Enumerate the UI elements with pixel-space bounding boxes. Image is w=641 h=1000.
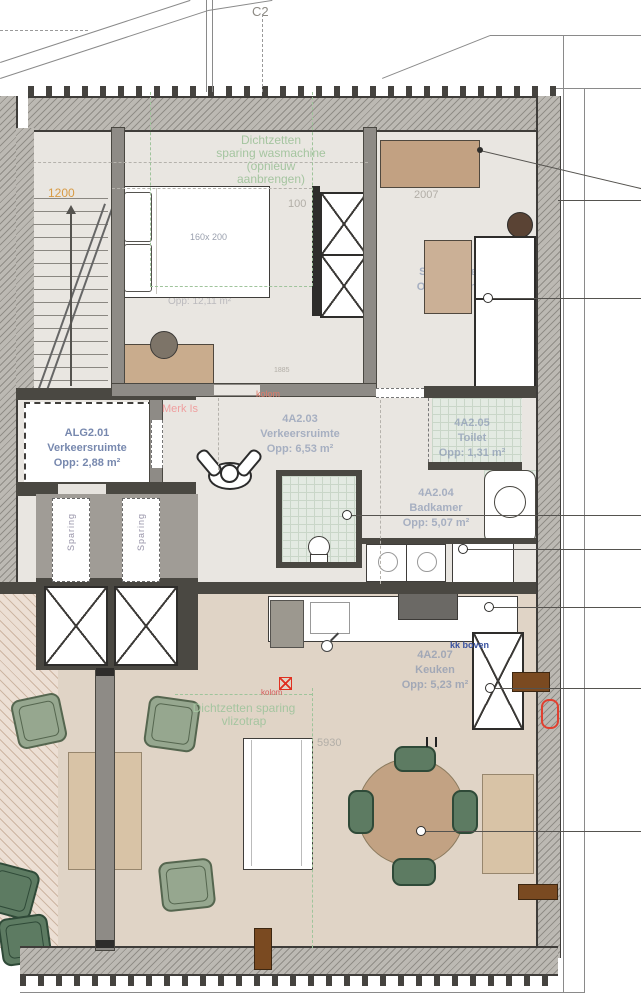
dim-100: 100 <box>288 198 306 210</box>
note-line: aanbrengen) <box>196 173 346 186</box>
dining-chair <box>394 746 436 772</box>
room-label-4a2-04: 4A2.04 Badkamer Opp: 5,07 m² <box>376 486 496 531</box>
centerline <box>0 30 88 31</box>
note-merk: Merk Is <box>162 403 198 415</box>
door-opening <box>214 385 260 395</box>
basin <box>417 552 437 572</box>
roof-line <box>382 35 490 79</box>
beam <box>254 928 272 970</box>
wall-cap <box>96 940 114 948</box>
wardrobe <box>320 192 368 318</box>
leader-line <box>558 200 641 201</box>
room-name: Verkeersruimte <box>240 427 360 442</box>
leader-node <box>458 544 468 554</box>
room-name: Verkeersruimte <box>28 441 146 456</box>
bath-wall <box>276 470 282 568</box>
wall-cap <box>96 668 114 676</box>
wall-spine <box>96 668 114 950</box>
counter-block <box>270 600 304 648</box>
basin <box>378 552 398 572</box>
room-label-alg2-01: ALG2.01 Verkeersruimte Opp: 2,88 m² <box>28 426 146 471</box>
sideboard-top <box>380 140 480 188</box>
leader-node <box>342 510 352 520</box>
shower-drain <box>494 486 526 518</box>
dim-stair: 1200 <box>48 186 75 200</box>
room-area: Opp: 2,88 m² <box>28 456 146 471</box>
room-name: Keuken <box>378 663 492 678</box>
wall-interior <box>196 582 536 594</box>
roof-line <box>0 10 208 79</box>
leader-node <box>416 826 426 836</box>
wall-top <box>28 96 558 132</box>
wardrobe-cell <box>322 194 366 256</box>
beam <box>512 672 550 692</box>
wall-interior <box>112 128 124 390</box>
wall-bottom <box>20 946 558 976</box>
note-kolom-top: kolom <box>256 389 280 399</box>
dining-chair <box>348 790 374 834</box>
person-head <box>220 464 239 483</box>
roof-line <box>0 0 190 63</box>
leader-node <box>483 293 493 303</box>
note-vlizotrap: Dichtzetten sparing vlizotrap <box>164 702 324 728</box>
wall-stair-left <box>16 128 34 390</box>
room-id: 4A2.03 <box>240 412 360 427</box>
long-table-line <box>251 740 252 866</box>
tick-mark <box>426 737 428 747</box>
leader-line <box>492 298 641 299</box>
boundary-line <box>584 88 585 992</box>
red-capsule-marker <box>541 699 559 729</box>
room-id: 4A2.07 <box>378 648 492 663</box>
room-name: Toilet <box>424 431 520 446</box>
wall-interior <box>424 386 536 398</box>
door-opening <box>376 388 424 398</box>
room-label-4a2-03: 4A2.03 Verkeersruimte Opp: 6,53 m² <box>240 412 360 457</box>
side-table <box>482 774 534 874</box>
roof-line <box>490 35 641 36</box>
room-name: Badkamer <box>376 501 496 516</box>
pillow <box>124 192 152 242</box>
door-opening <box>58 484 106 494</box>
leader-line <box>352 515 641 516</box>
floor-plan: Opp: 12,11 m² 4A2.02 Slaapkamer Opp: 8,4… <box>0 0 641 1000</box>
room-id: ALG2.01 <box>28 426 146 441</box>
kitchen-sink <box>310 602 350 634</box>
revision-line-green <box>150 286 312 287</box>
armchair <box>158 857 217 912</box>
bed-split-line <box>156 188 157 294</box>
leader-node <box>485 683 495 693</box>
shaft-label: Sparing <box>66 513 76 551</box>
leader-line <box>426 831 641 832</box>
dashed-line <box>218 398 219 470</box>
boundary-line <box>556 88 641 89</box>
bath-wall <box>276 562 362 568</box>
revision-line-green <box>175 694 312 695</box>
elevator-shaft <box>114 586 178 666</box>
leader-node <box>484 602 494 612</box>
leader-line <box>493 607 641 608</box>
tick-mark <box>435 737 437 747</box>
bench <box>424 240 472 314</box>
cooktop <box>398 592 458 620</box>
outer-line-bottom <box>20 992 585 993</box>
seat-line <box>165 865 209 905</box>
bath-wall <box>356 470 362 568</box>
bed-size-label: 160x 200 <box>190 232 227 242</box>
shaft-label: Sparing <box>136 513 146 551</box>
revision-line-green <box>312 92 313 286</box>
wall-interior <box>364 128 376 394</box>
note-line: vlizotrap <box>164 715 324 728</box>
seat-line <box>18 700 61 743</box>
room-area: Opp: 5,07 m² <box>376 516 496 531</box>
faucet-icon <box>321 640 333 652</box>
stair-arrow-icon <box>66 205 76 214</box>
long-table-line <box>301 740 302 866</box>
dim-2007: 2007 <box>414 189 438 201</box>
facade-posts-bottom <box>20 974 558 986</box>
long-table <box>243 738 313 870</box>
room-area: Opp: 5,23 m² <box>378 678 492 693</box>
tall-cabinet <box>474 236 536 392</box>
facade-posts <box>28 86 558 96</box>
dining-chair <box>392 858 436 886</box>
centerline <box>262 14 263 92</box>
seat-line <box>0 869 33 913</box>
door-opening <box>151 420 163 468</box>
wall-interior <box>0 582 36 594</box>
leader-line <box>467 549 641 550</box>
boundary-line <box>563 35 564 992</box>
beam <box>518 884 558 900</box>
room-area: Opp: 1,31 m² <box>424 446 520 461</box>
wall-interior <box>362 538 536 544</box>
room-label-4a2-07: 4A2.07 Keuken Opp: 5,23 m² <box>378 648 492 693</box>
shaft: Sparing <box>52 498 90 582</box>
note-wasmachine: Dichtzetten sparing wasmachine (opnieuw … <box>196 134 346 186</box>
drawing-mark: C2 <box>252 4 269 19</box>
wall-right <box>536 96 561 958</box>
dashed-line <box>112 188 312 189</box>
shaft: Sparing <box>122 498 160 582</box>
dining-chair <box>452 790 478 834</box>
roof-line <box>212 0 213 92</box>
stair-direction-line <box>70 214 72 386</box>
room-id: 4A2.05 <box>424 416 520 431</box>
dim-1885: 1885 <box>274 367 290 374</box>
room-area: Opp: 6,53 m² <box>240 442 360 457</box>
note-kolom-bottom: kolom <box>261 688 282 697</box>
leader-dot <box>477 147 483 153</box>
leader-line <box>494 688 641 689</box>
wall-interior <box>312 186 320 316</box>
elevator-shaft <box>44 586 108 666</box>
room-id: 4A2.04 <box>376 486 496 501</box>
wardrobe-cell <box>322 256 366 316</box>
room-label-4a2-05: 4A2.05 Toilet Opp: 1,31 m² <box>424 416 520 461</box>
wall-interior <box>428 462 522 470</box>
round-element <box>507 212 533 238</box>
dim-5930: 5930 <box>317 737 341 749</box>
roof-line <box>206 0 207 92</box>
armchair <box>9 691 68 750</box>
bath-wall <box>276 470 362 476</box>
stool <box>150 331 178 359</box>
revision-line-green <box>150 92 151 286</box>
pillow <box>124 244 152 292</box>
